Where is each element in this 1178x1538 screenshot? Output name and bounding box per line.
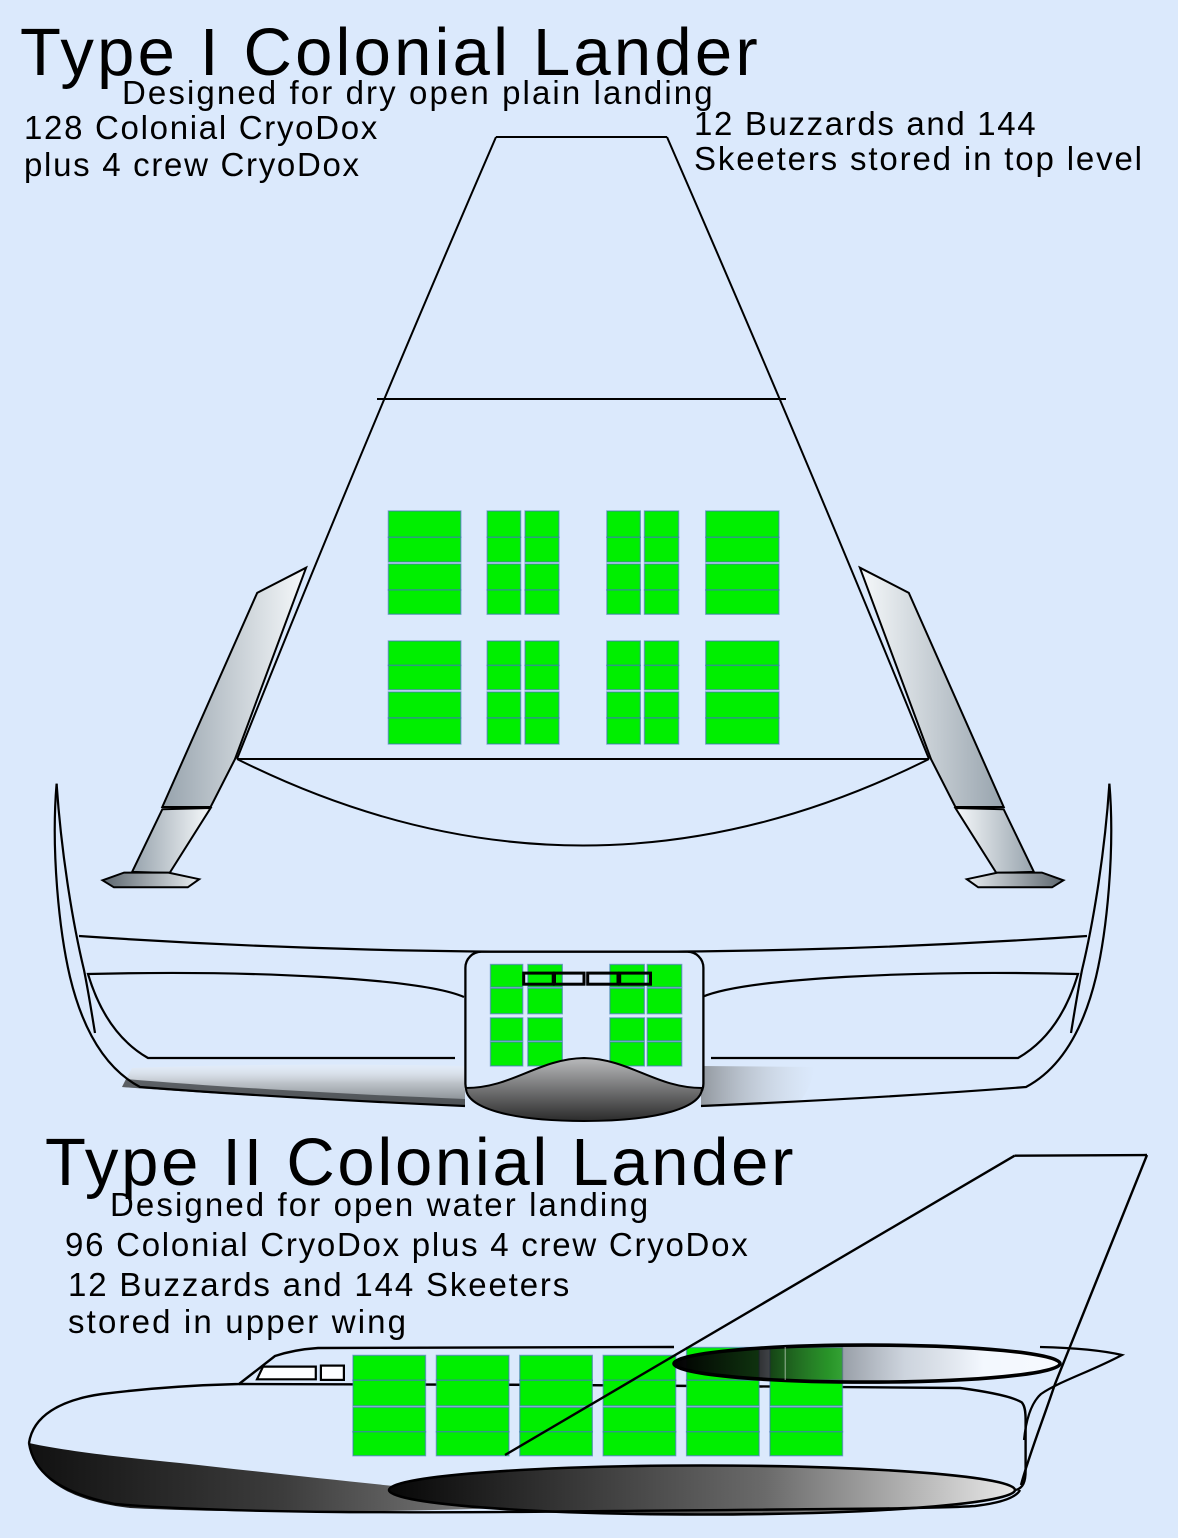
svg-text:plus 4 crew CryoDox: plus 4 crew CryoDox — [24, 146, 361, 183]
svg-text:stored in upper wing: stored in upper wing — [68, 1303, 408, 1340]
svg-text:Designed for dry open plain la: Designed for dry open plain landing — [122, 74, 715, 111]
svg-text:Designed for open water landin: Designed for open water landing — [110, 1186, 650, 1223]
svg-text:12 Buzzards and 144: 12 Buzzards and 144 — [694, 105, 1037, 142]
svg-text:96 Colonial CryoDox plus 4 cre: 96 Colonial CryoDox plus 4 crew CryoDox — [65, 1226, 750, 1263]
svg-text:128 Colonial CryoDox: 128 Colonial CryoDox — [24, 109, 379, 146]
svg-text:12 Buzzards and 144 Skeeters: 12 Buzzards and 144 Skeeters — [68, 1266, 571, 1303]
svg-text:Skeeters stored in top level: Skeeters stored in top level — [694, 140, 1144, 177]
